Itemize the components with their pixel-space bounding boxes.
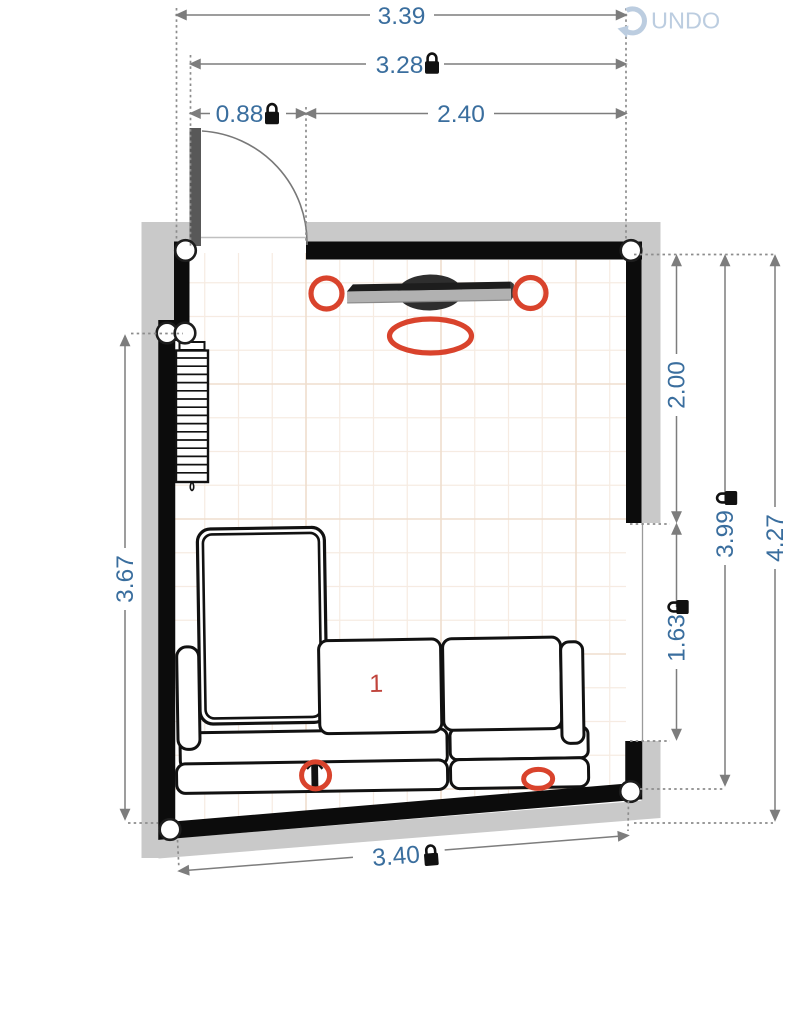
svg-text:0.88: 0.88	[216, 101, 264, 128]
svg-text:1.63: 1.63	[664, 614, 691, 662]
svg-text:3.99: 3.99	[712, 510, 739, 558]
svg-text:UNDO: UNDO	[651, 8, 720, 34]
svg-text:2.40: 2.40	[437, 101, 485, 128]
svg-text:3.40: 3.40	[371, 841, 421, 872]
svg-text:3.67: 3.67	[112, 555, 139, 603]
svg-text:4.27: 4.27	[762, 514, 789, 562]
svg-text:2.00: 2.00	[664, 361, 691, 409]
svg-text:3.39: 3.39	[378, 3, 426, 30]
svg-text:3.28: 3.28	[376, 52, 424, 79]
svg-text:1: 1	[369, 670, 383, 698]
